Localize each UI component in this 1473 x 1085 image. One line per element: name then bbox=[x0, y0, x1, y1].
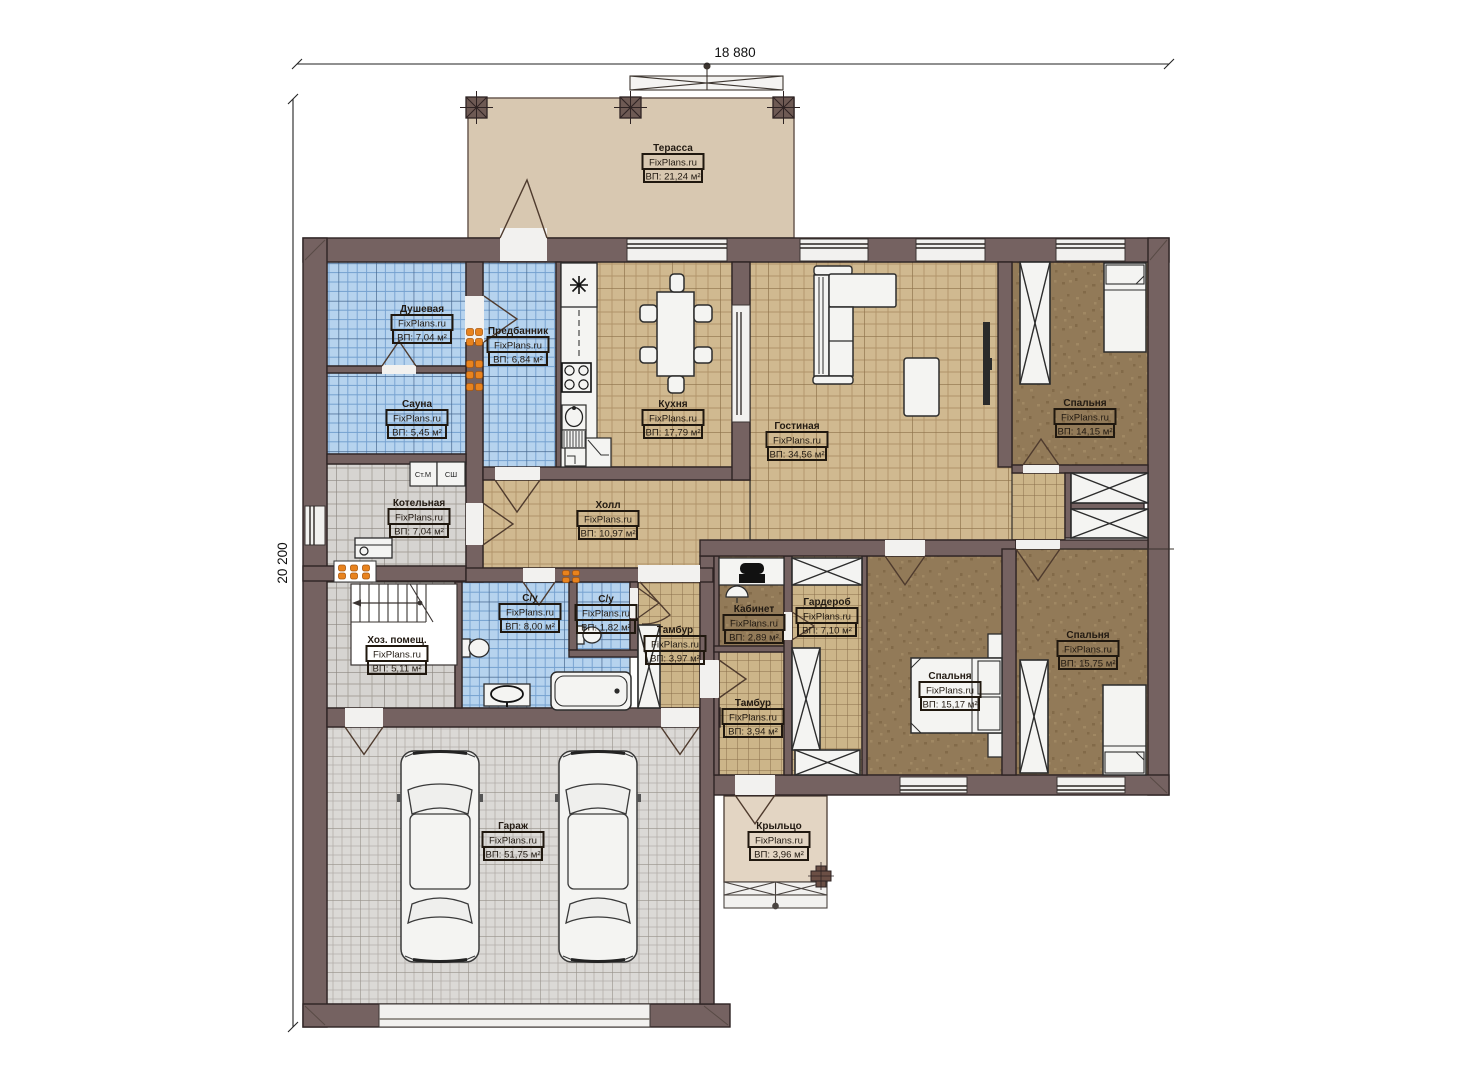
svg-text:FixPlans.ru: FixPlans.ru bbox=[582, 609, 630, 620]
svg-text:FixPlans.ru: FixPlans.ru bbox=[755, 836, 803, 847]
svg-text:ВП: 1,82 м²: ВП: 1,82 м² bbox=[581, 623, 632, 634]
svg-text:ВП: 8,00 м²: ВП: 8,00 м² bbox=[505, 622, 556, 633]
svg-text:ВП: 7,10 м²: ВП: 7,10 м² bbox=[802, 626, 853, 637]
svg-text:FixPlans.ru: FixPlans.ru bbox=[649, 414, 697, 425]
svg-text:СШ: СШ bbox=[445, 470, 457, 479]
svg-text:Холл: Холл bbox=[595, 500, 620, 511]
svg-text:С/у: С/у bbox=[522, 593, 538, 604]
svg-text:Кабинет: Кабинет bbox=[734, 603, 775, 615]
svg-text:FixPlans.ru: FixPlans.ru bbox=[803, 612, 851, 623]
svg-text:ВП: 14,15 м²: ВП: 14,15 м² bbox=[1057, 427, 1113, 438]
svg-text:Гардероб: Гардероб bbox=[803, 596, 850, 608]
svg-text:ВП: 15,75 м²: ВП: 15,75 м² bbox=[1060, 659, 1116, 670]
svg-text:Котельная: Котельная bbox=[393, 498, 446, 509]
svg-text:Ст.М: Ст.М bbox=[415, 470, 431, 479]
svg-text:FixPlans.ru: FixPlans.ru bbox=[395, 513, 443, 524]
svg-text:FixPlans.ru: FixPlans.ru bbox=[494, 341, 542, 352]
svg-text:ВП: 5,11 м²: ВП: 5,11 м² bbox=[372, 664, 422, 675]
svg-text:Терасса: Терасса bbox=[653, 143, 693, 154]
svg-text:ВП: 34,56 м²: ВП: 34,56 м² bbox=[769, 450, 825, 461]
svg-text:FixPlans.ru: FixPlans.ru bbox=[773, 436, 821, 447]
svg-text:18 880: 18 880 bbox=[714, 45, 755, 60]
svg-text:Спальня: Спальня bbox=[1066, 630, 1109, 641]
svg-text:Крыльцо: Крыльцо bbox=[756, 821, 802, 832]
svg-text:ВП: 10,97 м²: ВП: 10,97 м² bbox=[580, 529, 636, 540]
svg-text:FixPlans.ru: FixPlans.ru bbox=[489, 836, 537, 847]
svg-text:ВП: 2,89 м²: ВП: 2,89 м² bbox=[729, 633, 780, 644]
svg-text:Спальня: Спальня bbox=[1063, 398, 1106, 409]
svg-text:ВП: 3,97 м²: ВП: 3,97 м² bbox=[650, 654, 701, 665]
svg-text:ВП: 17,79 м²: ВП: 17,79 м² bbox=[645, 428, 701, 439]
svg-text:FixPlans.ru: FixPlans.ru bbox=[398, 319, 446, 330]
svg-text:ВП: 7,04 м²: ВП: 7,04 м² bbox=[397, 333, 448, 344]
svg-text:Спальня: Спальня bbox=[928, 671, 971, 682]
svg-text:ВП: 51,75 м²: ВП: 51,75 м² bbox=[485, 850, 541, 861]
svg-text:FixPlans.ru: FixPlans.ru bbox=[373, 650, 421, 661]
svg-text:FixPlans.ru: FixPlans.ru bbox=[1061, 413, 1109, 424]
svg-text:ВП: 6,84 м²: ВП: 6,84 м² bbox=[493, 355, 544, 366]
svg-text:FixPlans.ru: FixPlans.ru bbox=[506, 608, 554, 619]
svg-text:FixPlans.ru: FixPlans.ru bbox=[729, 713, 777, 724]
svg-text:ВП: 5,45 м²: ВП: 5,45 м² bbox=[392, 428, 443, 439]
svg-text:FixPlans.ru: FixPlans.ru bbox=[393, 414, 441, 425]
svg-text:Кухня: Кухня bbox=[658, 399, 687, 410]
svg-text:ВП: 7,04 м²: ВП: 7,04 м² bbox=[394, 527, 445, 538]
svg-text:ВП: 3,94 м²: ВП: 3,94 м² bbox=[728, 727, 779, 738]
svg-text:ВП: 21,24 м²: ВП: 21,24 м² bbox=[645, 172, 701, 183]
svg-text:FixPlans.ru: FixPlans.ru bbox=[651, 640, 699, 651]
svg-text:FixPlans.ru: FixPlans.ru bbox=[584, 515, 632, 526]
svg-text:Сауна: Сауна bbox=[402, 399, 433, 410]
svg-text:Тамбур: Тамбур bbox=[657, 624, 693, 636]
svg-text:FixPlans.ru: FixPlans.ru bbox=[730, 619, 778, 630]
svg-text:Хоз. помещ.: Хоз. помещ. bbox=[367, 635, 426, 646]
svg-text:FixPlans.ru: FixPlans.ru bbox=[1064, 645, 1112, 656]
svg-text:20 200: 20 200 bbox=[275, 542, 290, 583]
svg-text:FixPlans.ru: FixPlans.ru bbox=[926, 686, 974, 697]
svg-text:Предбанник: Предбанник bbox=[488, 325, 549, 337]
svg-text:Душевая: Душевая bbox=[400, 304, 444, 315]
svg-text:С/у: С/у bbox=[598, 594, 614, 605]
svg-text:Гараж: Гараж bbox=[498, 821, 529, 832]
svg-text:ВП: 3,96 м²: ВП: 3,96 м² bbox=[754, 850, 805, 861]
svg-text:Тамбур: Тамбур bbox=[735, 697, 771, 709]
svg-text:FixPlans.ru: FixPlans.ru bbox=[649, 158, 697, 169]
svg-text:Гостиная: Гостиная bbox=[774, 421, 819, 432]
svg-text:ВП: 15,17 м²: ВП: 15,17 м² bbox=[922, 700, 978, 711]
